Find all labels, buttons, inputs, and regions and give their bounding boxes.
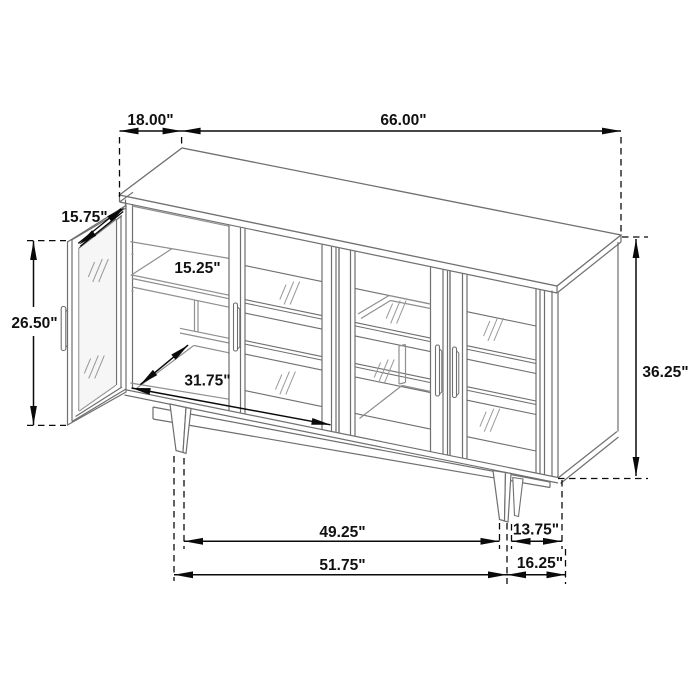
svg-text:26.50": 26.50" bbox=[11, 315, 57, 332]
svg-text:36.25": 36.25" bbox=[642, 364, 688, 381]
svg-text:51.75": 51.75" bbox=[319, 557, 365, 574]
svg-text:15.75": 15.75" bbox=[61, 209, 107, 226]
svg-text:66.00": 66.00" bbox=[380, 112, 426, 129]
svg-text:15.25": 15.25" bbox=[174, 260, 220, 277]
svg-text:18.00": 18.00" bbox=[127, 112, 173, 129]
svg-text:16.25": 16.25" bbox=[517, 555, 563, 572]
svg-text:49.25": 49.25" bbox=[319, 524, 365, 541]
svg-text:31.75": 31.75" bbox=[184, 373, 230, 390]
svg-text:13.75": 13.75" bbox=[513, 522, 559, 539]
